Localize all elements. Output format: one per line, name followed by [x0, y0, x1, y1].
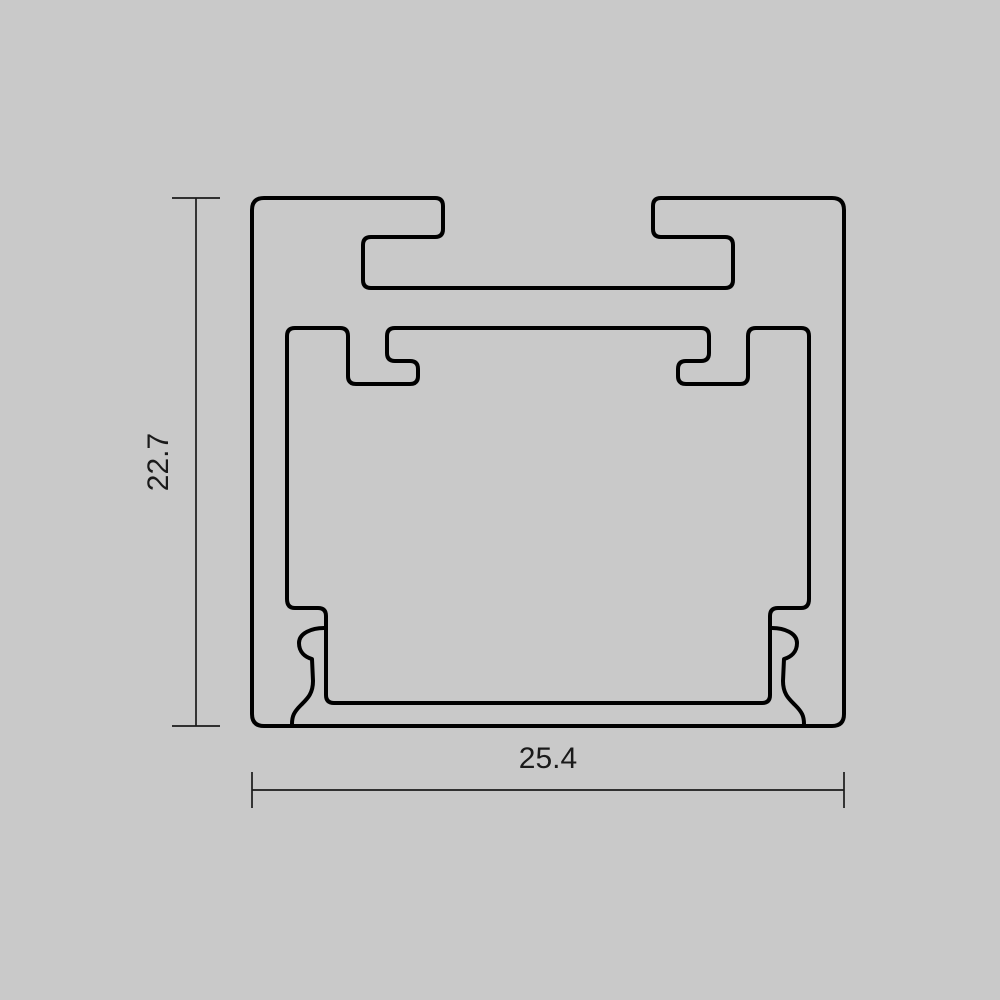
height-dimension-label: 22.7: [142, 433, 175, 491]
left-retainer-bump: [292, 628, 324, 724]
drawing-canvas: 22.7 25.4: [0, 0, 1000, 1000]
right-retainer-bump: [772, 628, 804, 724]
profile-cross-section-drawing: 22.7 25.4: [0, 0, 1000, 1000]
width-dimension: 25.4: [252, 742, 844, 808]
height-dimension: 22.7: [142, 198, 220, 726]
profile-inner-contour: [287, 328, 809, 703]
profile-outer-contour: [252, 198, 844, 726]
width-dimension-label: 25.4: [519, 742, 577, 775]
